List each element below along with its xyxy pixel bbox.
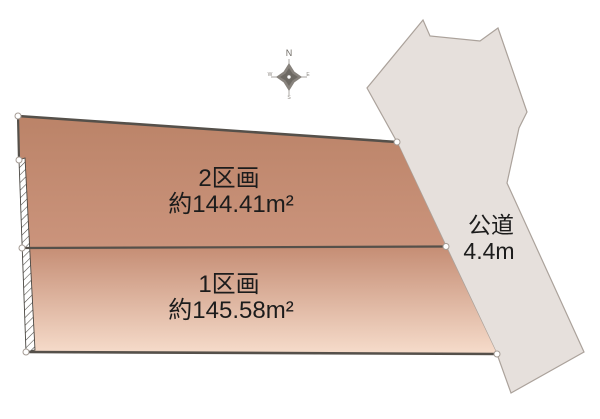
plot-1-area-label: 約145.58m²: [168, 297, 293, 324]
plot-divider-line: [22, 247, 446, 249]
vertex-marker: [494, 351, 500, 357]
plot-map: N W E S 2区画 約144.41m² 1区画 約145.58m² 公道 4…: [0, 0, 600, 419]
vertex-marker: [16, 157, 22, 163]
road-width-label: 4.4m: [463, 238, 514, 264]
compass-north-label: N: [286, 48, 293, 58]
vertex-marker: [19, 245, 25, 251]
compass-east-label: E: [306, 72, 310, 78]
vertex-marker: [23, 349, 29, 355]
plot-2-area-label: 約144.41m²: [168, 191, 293, 218]
site-plan-svg: N W E S 2区画 約144.41m² 1区画 約145.58m² 公道 4…: [0, 0, 600, 419]
west-boundary-line: [18, 116, 19, 160]
vertex-marker: [15, 113, 21, 119]
compass-rose-icon: N W E S: [268, 48, 311, 101]
vertex-marker: [443, 244, 449, 250]
vertex-marker: [394, 139, 400, 145]
compass-west-label: W: [268, 72, 273, 78]
plot-1-name-label: 1区画: [198, 271, 259, 298]
compass-south-label: S: [287, 95, 291, 101]
plot-2-name-label: 2区画: [198, 165, 259, 192]
compass-hub: [287, 75, 291, 79]
road-name-label: 公道: [468, 212, 514, 238]
